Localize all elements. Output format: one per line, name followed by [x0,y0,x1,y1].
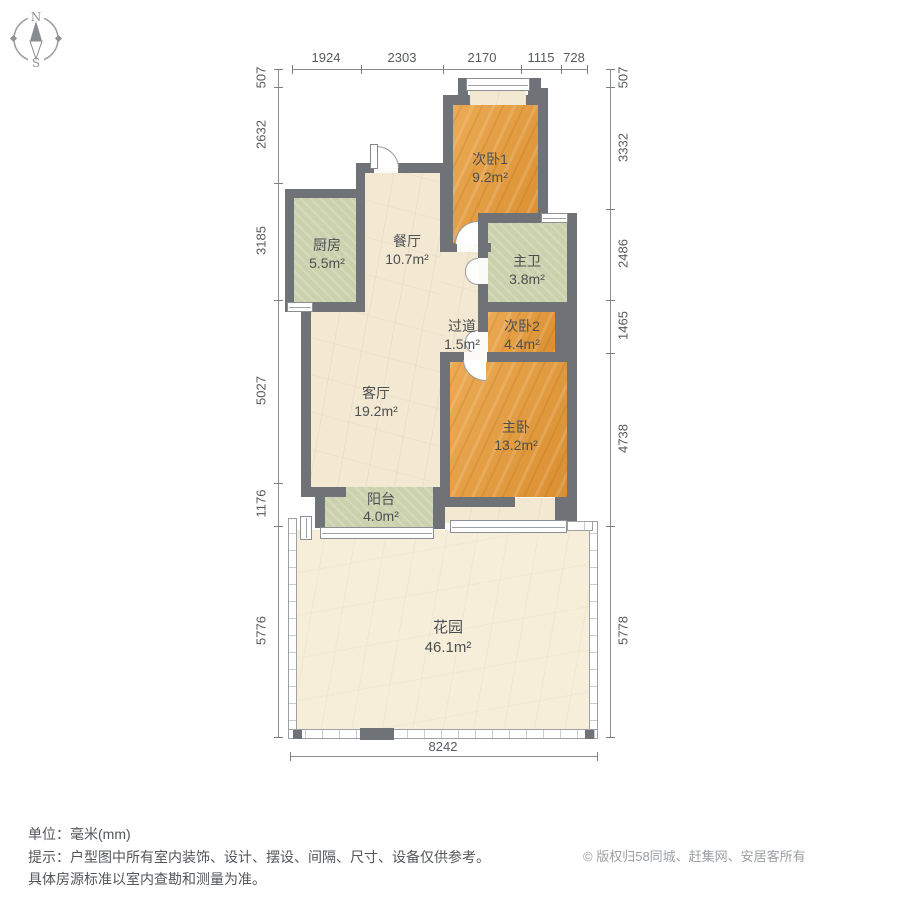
dim-tick [290,752,291,761]
copyright-text: 版权归58同城、赶集网、安居客所有 [596,849,805,864]
wall [285,189,365,198]
dim-tick [274,87,283,88]
door-opening [457,243,478,252]
room-area: 19.2m² [331,402,421,420]
dim-tick [606,87,615,88]
dim-label-right: 507 [616,43,631,113]
garden-fence-bottom [288,729,598,739]
wall [567,302,577,524]
wall [478,284,488,312]
room-label-master-bedroom: 主卧 13.2m² [471,418,561,454]
dim-label-right: 2486 [616,219,631,289]
wall [301,302,311,497]
wall [315,490,325,528]
dim-line-bottom [290,756,597,757]
entry-door-arc [376,146,399,168]
floor-bay-sill [513,498,555,520]
room-area: 5.5m² [282,254,372,272]
room-area: 13.2m² [471,436,561,454]
dim-tick [274,526,283,527]
room-label-kitchen: 厨房 5.5m² [282,236,372,272]
dim-tick [606,526,615,527]
wall [538,88,548,218]
dim-tick [361,65,362,74]
room-name: 次卧2 [477,317,567,335]
dim-label-right: 5778 [616,596,631,666]
dim-tick [597,752,598,761]
room-label-garden: 花园 46.1m² [403,618,493,658]
dim-line-right [610,69,611,737]
room-label-balcony: 阳台 4.0m² [336,491,426,525]
wall [440,352,450,507]
dim-label-left: 3185 [254,206,269,276]
room-name: 次卧1 [445,150,535,168]
dim-label-left: 5027 [254,356,269,426]
garden-fence-right [589,521,598,738]
room-area: 9.2m² [445,168,535,186]
room-name: 主卫 [482,252,572,270]
dim-label-bottom: 8242 [408,739,478,754]
dim-tick [606,300,615,301]
dim-label-right: 1465 [616,291,631,361]
room-name: 餐厅 [362,232,452,250]
dim-tick [521,65,522,74]
dim-tick [274,69,283,70]
window [320,527,434,539]
window [300,516,312,540]
dim-label-left: 2632 [254,100,269,170]
garden-fence-left [288,518,297,738]
room-area: 3.8m² [482,270,572,288]
room-area: 10.7m² [362,250,452,268]
footer-unit-line: 单位：毫米(mm) [28,824,131,844]
wall [440,497,515,507]
room-area: 4.4m² [477,335,567,353]
room-name: 阳台 [336,491,426,508]
dim-tick [292,65,293,74]
dim-tick [561,65,562,74]
room-area: 46.1m² [403,638,493,658]
window [450,520,567,533]
floorplan-canvas: N S 1924 2303 2170 1115 728 507 2632 318… [0,0,900,900]
dim-line-left [278,69,279,737]
dim-label-left: 5776 [254,596,269,666]
room-name: 花园 [403,618,493,638]
wall [433,487,445,529]
dim-label-top: 728 [539,50,609,65]
room-name: 厨房 [282,236,372,254]
dim-tick [606,353,615,354]
room-name: 主卧 [471,418,561,436]
dim-label-top: 1924 [291,50,361,65]
wall [555,497,572,522]
window [466,78,530,91]
footer-tip-line1: 提示：户型图中所有室内装饰、设计、摆设、间隔、尺寸、设备仅供参考。 [28,847,490,867]
dim-label-top: 2303 [367,50,437,65]
entry-door-leaf [370,144,378,169]
dim-tick [587,65,588,74]
dim-tick [274,483,283,484]
dim-label-right: 4738 [616,404,631,474]
room-name: 客厅 [331,384,421,402]
dim-tick [443,65,444,74]
dim-label-left: 1176 [254,469,269,539]
room-label-living: 客厅 19.2m² [331,384,421,420]
garden-gate [360,728,394,740]
footer-tip-line2: 具体房源标准以室内查勘和测量为准。 [28,869,266,889]
dim-label-right: 3332 [616,113,631,183]
room-area: 4.0m² [336,508,426,525]
dim-tick [274,737,283,738]
fence-post [585,730,594,739]
garden-fence-top-right [567,521,593,531]
floor-bay-sill [470,91,526,105]
dim-tick [606,69,615,70]
copyright-icon: © [583,849,593,864]
copyright-line: © 版权归58同城、赶集网、安居客所有 [583,846,806,865]
dim-tick [606,737,615,738]
dim-tick [274,183,283,184]
wall [487,352,577,362]
window [287,302,313,312]
dim-tick [274,300,283,301]
dim-tick [606,209,615,210]
room-label-dining: 餐厅 10.7m² [362,232,452,268]
dim-line-top [292,69,587,70]
room-label-secondary-bedroom-1: 次卧1 9.2m² [445,150,535,186]
window [541,213,568,223]
compass-icon: N S [8,8,64,70]
fence-post [293,730,302,739]
room-label-secondary-bedroom-2: 次卧2 4.4m² [477,317,567,353]
room-label-master-bath: 主卫 3.8m² [482,252,572,288]
